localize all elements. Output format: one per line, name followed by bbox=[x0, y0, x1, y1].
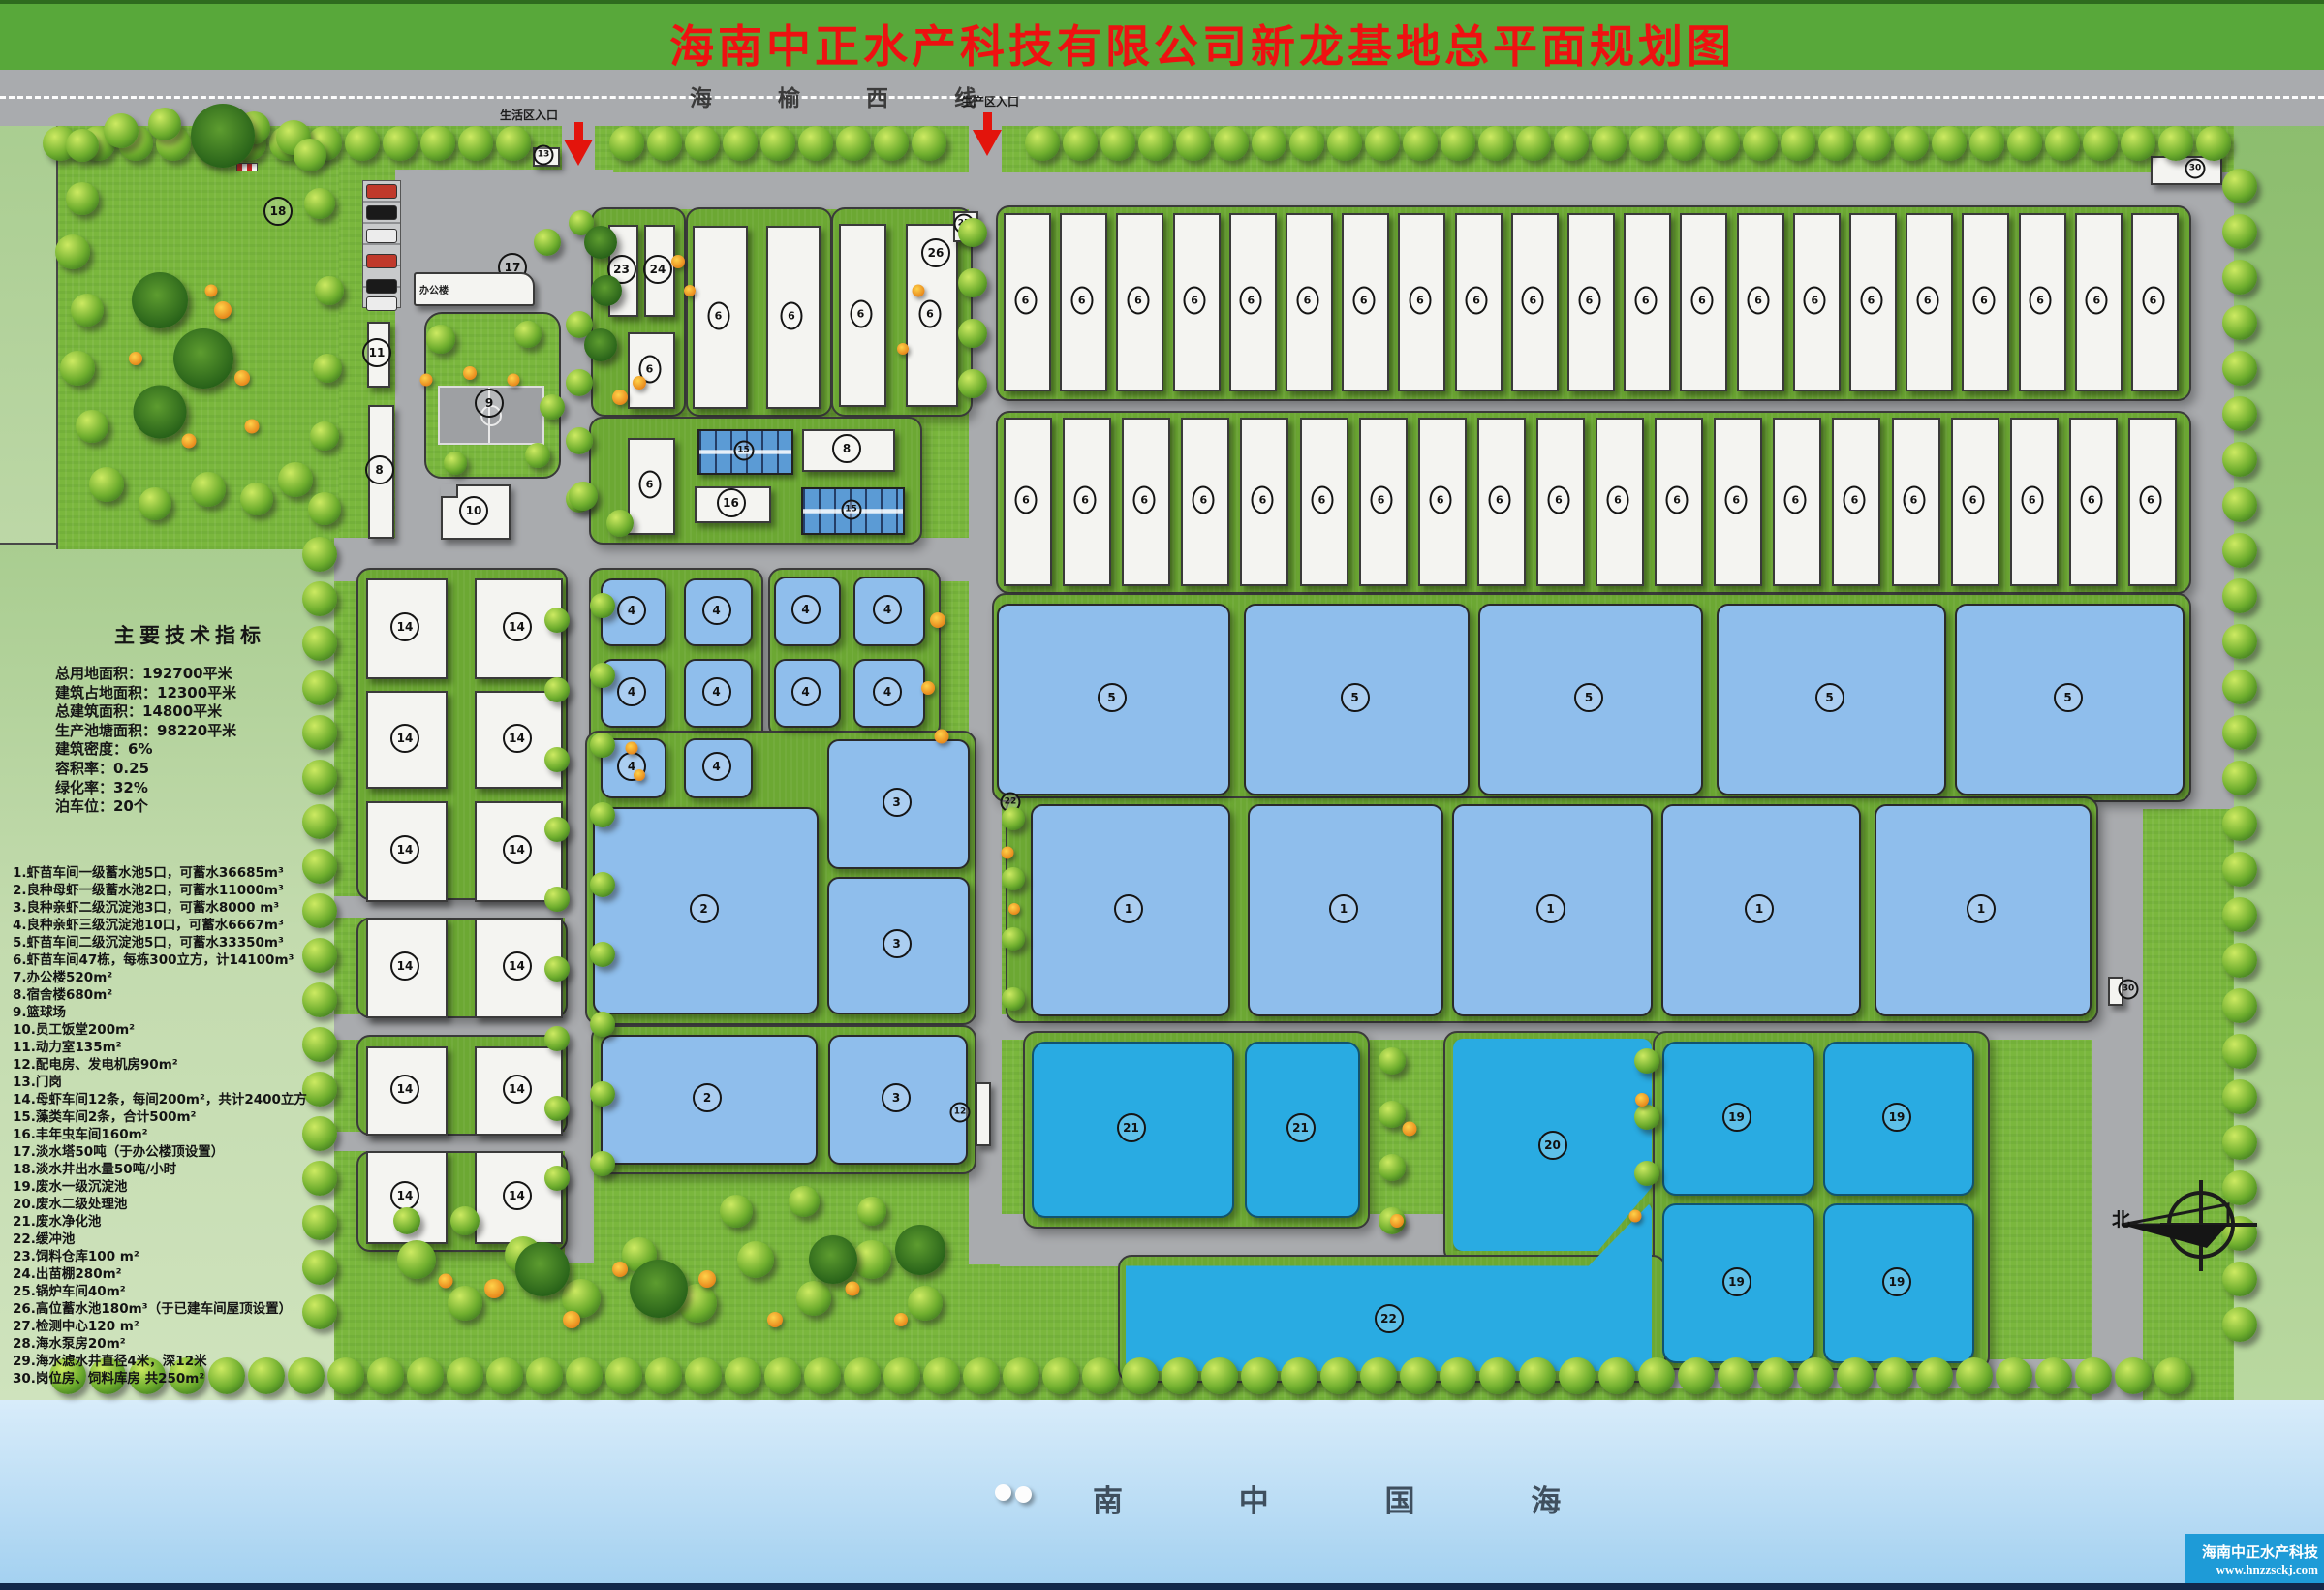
tree-icon bbox=[526, 1357, 563, 1394]
tree-icon bbox=[310, 421, 339, 451]
orange-bush-icon bbox=[1635, 1093, 1649, 1107]
tree-icon bbox=[590, 1012, 615, 1037]
marker-6: 6 bbox=[1193, 486, 1215, 514]
seawater-filter-well-icon bbox=[1015, 1486, 1032, 1503]
marker-14: 14 bbox=[503, 1075, 532, 1104]
marker-30: 30 bbox=[2119, 980, 2139, 1000]
palm-tree-icon bbox=[173, 328, 233, 389]
marker-6: 6 bbox=[1488, 486, 1510, 514]
marker-6: 6 bbox=[1725, 486, 1748, 514]
marker-6: 6 bbox=[707, 301, 729, 329]
tree-icon bbox=[302, 1294, 337, 1329]
orange-bush-icon bbox=[182, 434, 197, 449]
legend-item: 3.良种亲虾二级沉淀池3口，可蓄水8000 m³ bbox=[13, 899, 307, 917]
marker-6: 6 bbox=[2086, 287, 2108, 315]
tree-icon bbox=[393, 1207, 420, 1234]
tech-indicators-list: 总用地面积：192700平米建筑占地面积：12300平米总建筑面积：14800平… bbox=[55, 665, 236, 817]
tree-icon bbox=[1743, 126, 1778, 161]
tree-icon bbox=[883, 1357, 920, 1394]
orange-bush-icon bbox=[767, 1312, 783, 1327]
car-icon bbox=[366, 254, 397, 268]
tech-indicator-line: 生产池塘面积：98220平米 bbox=[55, 722, 236, 741]
tree-icon bbox=[302, 760, 337, 795]
tree-icon bbox=[566, 369, 593, 396]
road-center-line bbox=[0, 96, 2324, 99]
tree-icon bbox=[302, 982, 337, 1017]
tech-indicator-line: 泊车位：20个 bbox=[55, 797, 236, 817]
marker-14: 14 bbox=[390, 1075, 419, 1104]
tree-icon bbox=[450, 1206, 480, 1235]
palm-tree-icon bbox=[591, 275, 622, 306]
tech-indicator-line: 总建筑面积：14800平米 bbox=[55, 702, 236, 722]
legend-item: 4.良种亲虾三级沉淀池10口，可蓄水6667m³ bbox=[13, 917, 307, 934]
tree-icon bbox=[544, 887, 570, 912]
tree-icon bbox=[420, 126, 455, 161]
legend-item: 26.高位蓄水池180m³（于已建车间屋顶设置） bbox=[13, 1300, 307, 1318]
tree-icon bbox=[407, 1357, 444, 1394]
tree-icon bbox=[1379, 1154, 1406, 1181]
tree-icon bbox=[1252, 126, 1286, 161]
marker-6: 6 bbox=[1370, 486, 1392, 514]
tree-icon bbox=[66, 129, 99, 162]
tree-icon bbox=[302, 1161, 337, 1196]
marker-20: 20 bbox=[1538, 1131, 1567, 1160]
tree-icon bbox=[1705, 126, 1740, 161]
tree-icon bbox=[1678, 1357, 1715, 1394]
marker-6: 6 bbox=[1133, 486, 1156, 514]
legend-item: 12.配电房、发电机房90m² bbox=[13, 1056, 307, 1074]
tree-icon bbox=[836, 126, 871, 161]
orange-bush-icon bbox=[1629, 1210, 1642, 1223]
tree-icon bbox=[1002, 927, 1025, 951]
tree-icon bbox=[1916, 1357, 1953, 1394]
tree-icon bbox=[2083, 126, 2118, 161]
orange-bush-icon bbox=[913, 285, 925, 297]
orange-bush-icon bbox=[698, 1270, 716, 1288]
orange-bush-icon bbox=[1002, 847, 1014, 859]
tree-icon bbox=[912, 126, 946, 161]
tree-icon bbox=[958, 268, 987, 297]
tree-icon bbox=[958, 319, 987, 348]
orange-bush-icon bbox=[846, 1282, 860, 1296]
marker-4: 4 bbox=[791, 595, 821, 624]
tree-icon bbox=[544, 747, 570, 772]
marker-4: 4 bbox=[617, 596, 646, 625]
tree-icon bbox=[1360, 1357, 1397, 1394]
tree-icon bbox=[302, 938, 337, 973]
tree-icon bbox=[798, 126, 833, 161]
marker-6: 6 bbox=[1127, 287, 1149, 315]
tech-indicator-line: 容积率：0.25 bbox=[55, 760, 236, 779]
palm-tree-icon bbox=[515, 1242, 570, 1296]
tree-icon bbox=[2075, 1357, 2112, 1394]
palm-tree-icon bbox=[809, 1235, 857, 1284]
entrance-production-label: 生产区入口 bbox=[961, 93, 1019, 109]
car-icon bbox=[366, 279, 397, 294]
legend-item: 28.海水泵房20m² bbox=[13, 1335, 307, 1353]
marker-6: 6 bbox=[2021, 486, 2043, 514]
tree-icon bbox=[71, 294, 104, 327]
watermark-badge: 海南中正水产科技 www.hnzzsckj.com bbox=[2185, 1534, 2324, 1583]
tree-icon bbox=[2007, 126, 2042, 161]
marker-18: 18 bbox=[263, 197, 293, 226]
compass-north-label: 北 bbox=[2112, 1205, 2130, 1231]
marker-6: 6 bbox=[2139, 486, 2161, 514]
tree-icon bbox=[2154, 1357, 2191, 1394]
marker-6: 6 bbox=[1844, 486, 1866, 514]
tree-icon bbox=[2222, 806, 2257, 841]
marker-6: 6 bbox=[1634, 287, 1657, 315]
marker-13: 13 bbox=[534, 145, 554, 166]
tree-icon bbox=[2196, 126, 2231, 161]
tech-indicator-line: 建筑占地面积：12300平米 bbox=[55, 684, 236, 703]
tree-icon bbox=[148, 108, 181, 140]
marker-6: 6 bbox=[1352, 287, 1375, 315]
tree-icon bbox=[1042, 1357, 1079, 1394]
palm-tree-icon bbox=[630, 1260, 688, 1318]
legend-item: 11.动力室135m² bbox=[13, 1039, 307, 1056]
tree-icon bbox=[1176, 126, 1211, 161]
marker-6: 6 bbox=[1014, 287, 1037, 315]
tree-icon bbox=[302, 1072, 337, 1107]
marker-6: 6 bbox=[1466, 287, 1488, 315]
road-name-label: 海 榆 西 线 bbox=[690, 79, 1006, 112]
tree-icon bbox=[1797, 1357, 1834, 1394]
tree-icon bbox=[1634, 1161, 1659, 1186]
orange-bush-icon bbox=[894, 1313, 908, 1326]
marker-6: 6 bbox=[1547, 486, 1569, 514]
legend-item: 1.虾苗车间一级蓄水池5口，可蓄水36685m³ bbox=[13, 864, 307, 882]
tree-icon bbox=[327, 1357, 364, 1394]
marker-1: 1 bbox=[1536, 894, 1565, 923]
orange-bush-icon bbox=[234, 370, 250, 386]
marker-6: 6 bbox=[919, 299, 942, 327]
tree-icon bbox=[302, 893, 337, 928]
sea-bottom-bar bbox=[0, 1583, 2324, 1590]
tree-icon bbox=[720, 1195, 753, 1228]
marker-6: 6 bbox=[1962, 486, 1984, 514]
marker-14: 14 bbox=[503, 835, 532, 864]
marker-6: 6 bbox=[1916, 287, 1938, 315]
tree-icon bbox=[278, 462, 313, 497]
tree-icon bbox=[590, 1081, 615, 1107]
tree-icon bbox=[540, 394, 565, 420]
marker-14: 14 bbox=[390, 1181, 419, 1210]
marker-6: 6 bbox=[638, 471, 661, 499]
tree-icon bbox=[1138, 126, 1173, 161]
marker-4: 4 bbox=[702, 596, 731, 625]
marker-4: 4 bbox=[791, 677, 821, 706]
tree-icon bbox=[383, 126, 418, 161]
tree-icon bbox=[1559, 1357, 1596, 1394]
orange-bush-icon bbox=[1403, 1122, 1417, 1137]
marker-6: 6 bbox=[2030, 287, 2052, 315]
marker-6: 6 bbox=[1429, 486, 1451, 514]
car-icon bbox=[366, 184, 397, 199]
orange-bush-icon bbox=[634, 769, 645, 781]
tree-icon bbox=[1718, 1357, 1754, 1394]
marker-6: 6 bbox=[1607, 486, 1629, 514]
entrance-arrow-icon bbox=[983, 112, 992, 132]
tree-icon bbox=[1002, 987, 1025, 1011]
tree-icon bbox=[2158, 126, 2193, 161]
legend-item: 22.缓冲池 bbox=[13, 1231, 307, 1248]
building-10-notch bbox=[441, 484, 458, 498]
tree-icon bbox=[2222, 670, 2257, 704]
orange-bush-icon bbox=[439, 1274, 453, 1289]
tree-icon bbox=[590, 663, 615, 688]
tree-icon bbox=[1598, 1357, 1635, 1394]
legend-item: 6.虾苗车间47栋，每栋300立方，计14100m³ bbox=[13, 951, 307, 969]
tree-icon bbox=[2222, 1125, 2257, 1160]
tree-icon bbox=[304, 188, 335, 219]
tree-icon bbox=[1837, 1357, 1874, 1394]
marker-5: 5 bbox=[1815, 683, 1844, 712]
tree-icon bbox=[1554, 126, 1589, 161]
marker-6: 6 bbox=[1522, 287, 1544, 315]
tree-icon bbox=[302, 1027, 337, 1062]
tree-icon bbox=[544, 1166, 570, 1191]
marker-14: 14 bbox=[503, 724, 532, 753]
marker-14: 14 bbox=[503, 612, 532, 641]
tree-icon bbox=[544, 956, 570, 982]
tree-icon bbox=[1519, 1357, 1556, 1394]
entrance-living-label: 生活区入口 bbox=[500, 107, 558, 123]
tree-icon bbox=[2222, 260, 2257, 295]
marker-19: 19 bbox=[1722, 1267, 1751, 1296]
legend-item: 14.母虾车间12条，每间200m²，共计2400立方 bbox=[13, 1091, 307, 1108]
tree-icon bbox=[1400, 1357, 1437, 1394]
orange-bush-icon bbox=[484, 1279, 504, 1298]
marker-6: 6 bbox=[1903, 486, 1925, 514]
tree-icon bbox=[857, 1197, 886, 1226]
tree-icon bbox=[605, 1357, 642, 1394]
tree-icon bbox=[525, 443, 550, 468]
tree-icon bbox=[1818, 126, 1853, 161]
tree-icon bbox=[1241, 1357, 1278, 1394]
tree-icon bbox=[958, 369, 987, 398]
tree-icon bbox=[496, 126, 531, 161]
tree-icon bbox=[1162, 1357, 1198, 1394]
tree-icon bbox=[685, 1357, 722, 1394]
tree-icon bbox=[1122, 1357, 1159, 1394]
marker-2: 2 bbox=[693, 1083, 722, 1112]
car-icon bbox=[366, 296, 397, 311]
marker-30: 30 bbox=[2185, 159, 2206, 179]
tree-icon bbox=[1592, 126, 1627, 161]
tree-icon bbox=[302, 1250, 337, 1285]
orange-bush-icon bbox=[930, 612, 945, 628]
marker-1: 1 bbox=[1329, 894, 1358, 923]
orange-bush-icon bbox=[935, 730, 949, 744]
tree-icon bbox=[566, 427, 593, 454]
marker-14: 14 bbox=[390, 612, 419, 641]
office-building: 办公楼 bbox=[414, 272, 535, 306]
marker-8: 8 bbox=[832, 434, 861, 463]
orange-bush-icon bbox=[214, 301, 232, 319]
tree-icon bbox=[760, 126, 795, 161]
legend-list: 1.虾苗车间一级蓄水池5口，可蓄水36685m³2.良种母虾一级蓄水池2口，可蓄… bbox=[13, 864, 307, 1387]
tree-icon bbox=[55, 234, 90, 269]
site-plan-canvas: 4444444444333225555511111212120191919192… bbox=[0, 0, 2324, 1590]
tree-icon bbox=[302, 537, 337, 572]
tree-icon bbox=[544, 677, 570, 702]
tree-icon bbox=[2222, 578, 2257, 613]
legend-item: 24.出苗棚280m² bbox=[13, 1265, 307, 1283]
orange-bush-icon bbox=[612, 1262, 628, 1277]
tree-icon bbox=[1025, 126, 1060, 161]
palm-tree-icon bbox=[132, 272, 188, 328]
marker-6: 6 bbox=[1296, 287, 1318, 315]
tree-icon bbox=[1478, 126, 1513, 161]
tree-icon bbox=[1996, 1357, 2032, 1394]
marker-12: 12 bbox=[950, 1103, 971, 1123]
tree-icon bbox=[1379, 1101, 1406, 1128]
tree-icon bbox=[191, 472, 226, 507]
tree-icon bbox=[1327, 126, 1362, 161]
tree-icon bbox=[2222, 715, 2257, 750]
tree-icon bbox=[1969, 126, 2004, 161]
watermark-company: 海南中正水产科技 bbox=[2185, 1542, 2318, 1562]
legend-item: 18.淡水井出水量50吨/小时 bbox=[13, 1161, 307, 1178]
marker-19: 19 bbox=[1722, 1103, 1751, 1132]
marker-6: 6 bbox=[1860, 287, 1882, 315]
marker-4: 4 bbox=[873, 677, 902, 706]
legend-item: 9.篮球场 bbox=[13, 1004, 307, 1021]
tech-indicator-line: 绿化率：32% bbox=[55, 779, 236, 798]
tree-icon bbox=[1289, 126, 1324, 161]
tree-icon bbox=[1403, 126, 1438, 161]
marker-4: 4 bbox=[873, 595, 902, 624]
tree-icon bbox=[345, 126, 380, 161]
tree-icon bbox=[1214, 126, 1249, 161]
orange-bush-icon bbox=[612, 390, 628, 405]
tree-icon bbox=[2035, 1357, 2072, 1394]
orange-bush-icon bbox=[245, 420, 260, 434]
marker-1: 1 bbox=[1745, 894, 1774, 923]
tree-icon bbox=[963, 1357, 1000, 1394]
tree-icon bbox=[544, 1096, 570, 1121]
marker-14: 14 bbox=[390, 724, 419, 753]
legend-item: 21.废水净化池 bbox=[13, 1213, 307, 1231]
tree-icon bbox=[1757, 1357, 1794, 1394]
tree-icon bbox=[1281, 1357, 1317, 1394]
orange-bush-icon bbox=[463, 366, 477, 380]
marker-6: 6 bbox=[1311, 486, 1333, 514]
entrance-arrow-icon bbox=[574, 122, 583, 141]
marker-5: 5 bbox=[1341, 683, 1370, 712]
orange-bush-icon bbox=[633, 376, 646, 390]
marker-6: 6 bbox=[1578, 287, 1600, 315]
tree-icon bbox=[2222, 943, 2257, 978]
gate-bar-icon bbox=[236, 163, 258, 171]
tree-icon bbox=[66, 182, 99, 215]
tree-icon bbox=[2222, 305, 2257, 340]
legend-item: 17.淡水塔50吨（于办公楼顶设置） bbox=[13, 1143, 307, 1161]
tree-icon bbox=[2222, 396, 2257, 431]
building bbox=[976, 1082, 991, 1146]
tree-icon bbox=[2121, 126, 2155, 161]
tree-icon bbox=[2222, 214, 2257, 249]
tree-icon bbox=[426, 325, 455, 354]
tree-icon bbox=[447, 1357, 483, 1394]
tree-icon bbox=[486, 1357, 523, 1394]
tree-icon bbox=[2222, 897, 2257, 932]
marker-8: 8 bbox=[365, 455, 394, 484]
tree-icon bbox=[2222, 487, 2257, 522]
marker-4: 4 bbox=[702, 677, 731, 706]
tree-icon bbox=[606, 510, 634, 537]
tree-icon bbox=[590, 872, 615, 897]
marker-4: 4 bbox=[702, 752, 731, 781]
legend-item: 20.废水二级处理池 bbox=[13, 1196, 307, 1213]
tree-icon bbox=[723, 126, 758, 161]
legend-item: 19.废水一级沉淀池 bbox=[13, 1178, 307, 1196]
tree-icon bbox=[302, 1116, 337, 1151]
tree-icon bbox=[2222, 442, 2257, 477]
marker-26: 26 bbox=[921, 238, 950, 267]
tree-icon bbox=[874, 126, 909, 161]
tree-icon bbox=[2115, 1357, 2152, 1394]
tree-icon bbox=[2222, 1079, 2257, 1114]
marker-2: 2 bbox=[690, 894, 719, 923]
legend-item: 23.饲料仓库100 m² bbox=[13, 1248, 307, 1265]
plan-layer: 4444444444333225555511111212120191919192… bbox=[0, 0, 2324, 1590]
marker-6: 6 bbox=[781, 301, 803, 329]
tree-icon bbox=[1440, 1357, 1476, 1394]
marker-5: 5 bbox=[2054, 683, 2083, 712]
tree-icon bbox=[1856, 126, 1891, 161]
tree-icon bbox=[294, 139, 326, 171]
tech-indicators-heading: 主要技术指标 bbox=[114, 620, 265, 649]
tree-icon bbox=[1379, 1047, 1406, 1075]
legend-item: 2.良种母虾一级蓄水池2口，可蓄水11000m³ bbox=[13, 882, 307, 899]
tree-icon bbox=[1100, 126, 1135, 161]
palm-tree-icon bbox=[895, 1225, 945, 1275]
tree-icon bbox=[1634, 1048, 1659, 1074]
tree-icon bbox=[1003, 1357, 1039, 1394]
marker-14: 14 bbox=[503, 1181, 532, 1210]
marker-6: 6 bbox=[1666, 486, 1689, 514]
marker-6: 6 bbox=[1074, 486, 1097, 514]
marker-6: 6 bbox=[850, 299, 872, 327]
tree-icon bbox=[2222, 351, 2257, 386]
tree-icon bbox=[1201, 1357, 1238, 1394]
tree-icon bbox=[1667, 126, 1702, 161]
tree-icon bbox=[609, 126, 644, 161]
tree-icon bbox=[2222, 1307, 2257, 1342]
marker-11: 11 bbox=[362, 338, 391, 367]
entrance-arrow-icon bbox=[973, 130, 1002, 156]
tech-indicator-line: 建筑密度：6% bbox=[55, 740, 236, 760]
marker-21: 21 bbox=[1117, 1113, 1146, 1142]
orange-bush-icon bbox=[897, 343, 909, 355]
tree-icon bbox=[544, 817, 570, 842]
tree-icon bbox=[2222, 852, 2257, 887]
legend-item: 29.海水滤水井直径4米，深12米 bbox=[13, 1353, 307, 1370]
tech-indicator-line: 总用地面积：192700平米 bbox=[55, 665, 236, 684]
tree-icon bbox=[1932, 126, 1967, 161]
tree-icon bbox=[1629, 126, 1664, 161]
tree-icon bbox=[397, 1240, 436, 1279]
marker-5: 5 bbox=[1574, 683, 1603, 712]
tree-icon bbox=[1002, 867, 1025, 890]
tree-icon bbox=[367, 1357, 404, 1394]
tree-icon bbox=[1479, 1357, 1516, 1394]
car-icon bbox=[366, 205, 397, 220]
marker-19: 19 bbox=[1882, 1267, 1911, 1296]
tree-icon bbox=[908, 1286, 943, 1321]
